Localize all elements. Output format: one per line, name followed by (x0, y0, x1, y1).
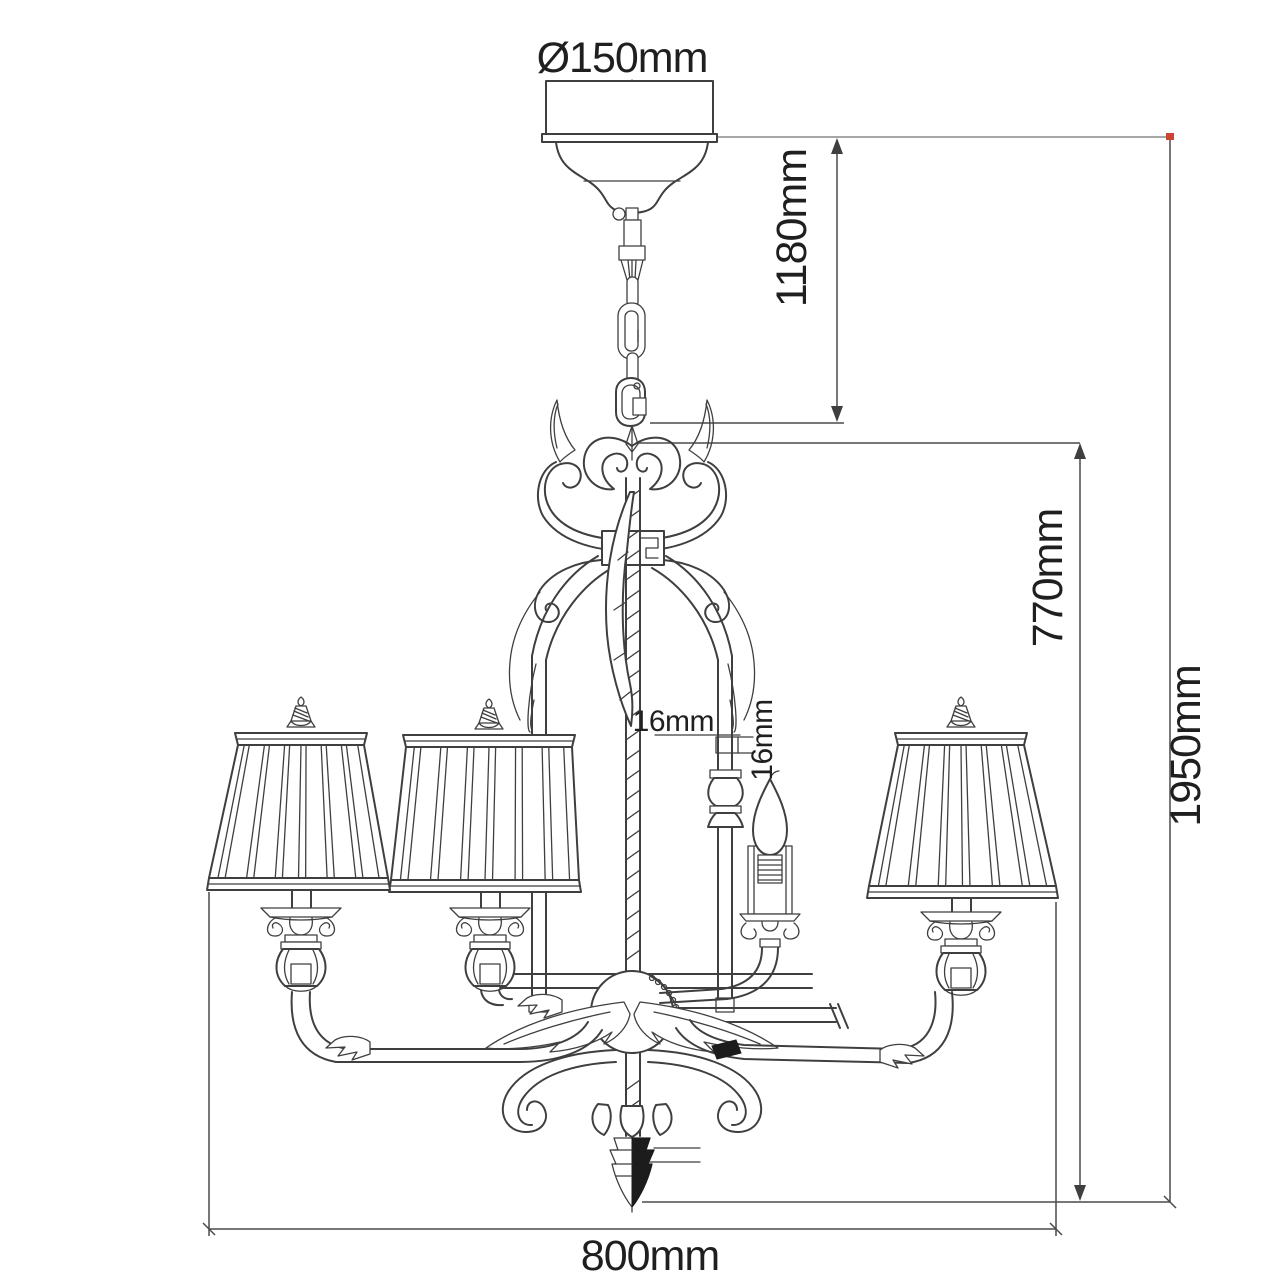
label-canopy-diameter: Ø150mm (537, 34, 708, 82)
bottom-scrolls (503, 1040, 761, 1137)
chain-coupler (619, 246, 645, 260)
shade-finial-3 (947, 697, 975, 727)
candle-drip-pan (740, 914, 800, 921)
canopy-cylinder (546, 81, 713, 134)
label-overall-height: 1950mm (1162, 665, 1210, 826)
dimension-lines (203, 133, 1176, 1236)
candle-bulb (753, 779, 787, 855)
canopy-lip (542, 134, 717, 142)
chain-stem (624, 220, 641, 248)
diagram-page: Ø150mm 1180mm 770mm 1950mm 800mm 16mm 16… (0, 0, 1280, 1280)
canopy-bell (556, 142, 708, 213)
fleur-petal-left (592, 1104, 610, 1135)
label-overall-width: 800mm (581, 1232, 719, 1280)
fleur-petal-right (653, 1104, 671, 1135)
candle-screw-base (758, 855, 782, 883)
column-wrap-leaf (606, 492, 634, 726)
bottom-finial (610, 1138, 700, 1212)
label-body-height: 770mm (1024, 509, 1072, 647)
quick-link-sleeve (633, 398, 646, 415)
canopy-screw (613, 208, 625, 220)
label-suspension-length: 1180mm (768, 149, 816, 307)
arm-leaf (518, 994, 562, 1018)
candle-cup-1 (261, 908, 341, 991)
ceiling-canopy (542, 81, 717, 220)
corner-marker (1166, 133, 1174, 140)
bare-candle (740, 771, 800, 947)
finial-shaded-half (632, 1138, 654, 1207)
label-stem-tube: 16mm (633, 705, 714, 738)
suspension-chain (616, 220, 646, 426)
tube-baluster (708, 770, 743, 827)
shade-front-left (207, 733, 390, 890)
candle-neck (760, 939, 780, 947)
candle-cup-2 (450, 908, 530, 991)
shade-finial-1 (287, 697, 315, 727)
tube-marker (716, 737, 738, 753)
chandelier-dimension-diagram: Ø150mm 1180mm 770mm 1950mm 800mm 16mm 16… (0, 0, 1280, 1280)
candle-cup-3 (921, 912, 1001, 995)
shade-right (867, 733, 1058, 898)
shade-back-left (389, 735, 581, 892)
shade-finial-2 (475, 699, 503, 729)
label-candle-tube: 16mm (746, 699, 779, 780)
